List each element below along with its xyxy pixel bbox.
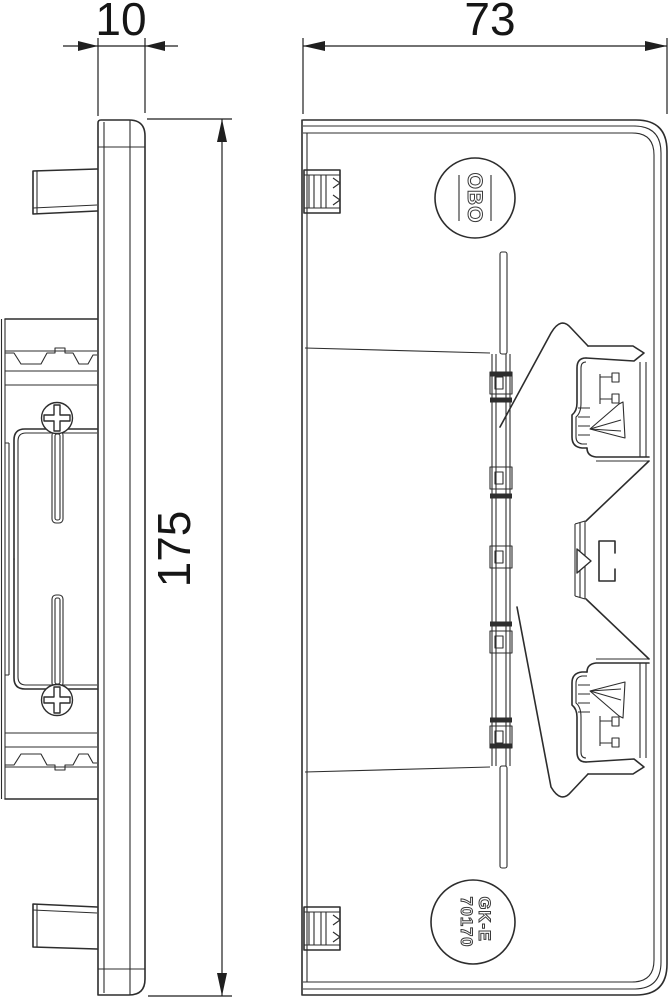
front-view-center bbox=[490, 323, 649, 797]
dimension-73-label: 73 bbox=[464, 0, 515, 45]
dimension-10: 10 bbox=[63, 0, 178, 116]
part-number-badge: GK-E 70170 bbox=[431, 880, 515, 964]
front-view: OBO GK-E 70170 bbox=[302, 120, 667, 995]
obo-logo-text: OBO bbox=[463, 173, 486, 224]
rail-mount-block bbox=[2, 319, 98, 559]
latch-tooth bbox=[490, 546, 512, 568]
side-view bbox=[2, 120, 146, 995]
technical-drawing-canvas: OBO GK-E 70170 10 73 175 bbox=[0, 0, 669, 1000]
center-bracket bbox=[599, 541, 615, 581]
cover-slot bbox=[500, 252, 507, 354]
latch-arm bbox=[572, 346, 649, 461]
technical-drawing: OBO GK-E 70170 10 73 175 bbox=[0, 0, 669, 1000]
end-plate-profile bbox=[98, 120, 145, 995]
mounting-screw bbox=[42, 403, 73, 434]
latch-tooth bbox=[490, 467, 512, 489]
wedge-detail bbox=[578, 402, 625, 438]
serration bbox=[5, 348, 97, 364]
cut-line bbox=[305, 348, 490, 353]
wall-clip bbox=[304, 170, 340, 213]
spring-bracket bbox=[600, 373, 619, 404]
dimension-10-label: 10 bbox=[95, 0, 146, 45]
screw-slot bbox=[52, 431, 63, 523]
svg-text:GK-E 70170: GK-E 70170 bbox=[457, 897, 493, 948]
outer-frame bbox=[302, 120, 667, 995]
dimension-175: 175 bbox=[147, 119, 232, 996]
obo-logo: OBO bbox=[435, 158, 515, 238]
part-code-line2: 70170 bbox=[457, 897, 475, 948]
side-view-upper-half bbox=[2, 169, 98, 559]
pointer-notch bbox=[577, 549, 591, 573]
dimension-73: 73 bbox=[303, 0, 667, 114]
part-code-line1: GK-E bbox=[475, 897, 493, 942]
fixing-tab bbox=[33, 169, 97, 214]
dimension-175-label: 175 bbox=[148, 511, 200, 588]
